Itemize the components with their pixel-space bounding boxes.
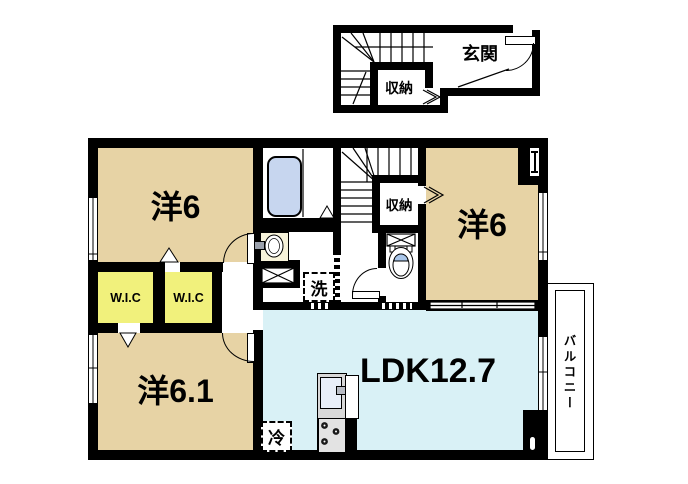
window: [89, 198, 97, 260]
storage-1f-label: 収納: [374, 79, 424, 97]
window-x-icon: [387, 234, 415, 246]
bathtub-icon: [267, 156, 302, 217]
wall: [418, 138, 426, 186]
bedroom-bottom-left-label: 洋6.1: [98, 368, 253, 410]
wall: [370, 62, 433, 70]
wall: [425, 62, 433, 88]
closet-door-chevron-1f: [423, 90, 440, 104]
storage-2f-label: 収納: [374, 195, 424, 213]
wall: [426, 300, 538, 311]
bedroom-right-label: 洋6: [426, 202, 538, 244]
wall: [333, 25, 341, 113]
wall: [88, 138, 98, 460]
wall: [88, 262, 158, 272]
entry-door-arc: [506, 43, 534, 71]
wall: [333, 105, 448, 113]
laundry-label: 洗: [311, 275, 328, 300]
wall: [378, 233, 386, 268]
fridge-label: 冷: [268, 424, 285, 449]
balcony-label: バルコニー: [558, 318, 580, 428]
sliding-door: [382, 303, 412, 309]
entrance-step-line: [458, 69, 509, 87]
wic-left-label: W.I.C: [98, 272, 153, 323]
laundry-box: 洗: [303, 272, 335, 302]
wall: [440, 88, 540, 96]
sliding-door: [311, 303, 332, 309]
window: [89, 335, 97, 403]
wall: [88, 323, 118, 333]
wall: [253, 218, 341, 232]
window: [539, 193, 547, 260]
fridge-box: 冷: [261, 421, 292, 452]
faucet-icon: [254, 241, 265, 250]
wall: [418, 204, 426, 310]
wall: [88, 138, 548, 148]
entrance-label: 玄関: [450, 43, 510, 63]
bedroom-right-floor: [426, 148, 518, 188]
window-small-icon: [531, 171, 538, 173]
wic-right-label: W.I.C: [165, 272, 212, 323]
door-arc-toilet: [352, 268, 377, 295]
toilet-icon: [389, 246, 413, 279]
stove-icon: [318, 418, 346, 453]
wall: [255, 260, 300, 288]
bedroom-top-left-label: 洋6: [98, 185, 253, 225]
wall: [523, 410, 548, 460]
window-small-icon: [534, 153, 536, 171]
ldk-label: LDK12.7: [318, 348, 538, 394]
drain-icon: [530, 437, 535, 450]
wall: [140, 323, 222, 333]
wall: [333, 25, 513, 33]
wall: [333, 138, 341, 255]
floor-plan-canvas: 玄関 収納: [0, 0, 688, 484]
window: [539, 337, 547, 410]
